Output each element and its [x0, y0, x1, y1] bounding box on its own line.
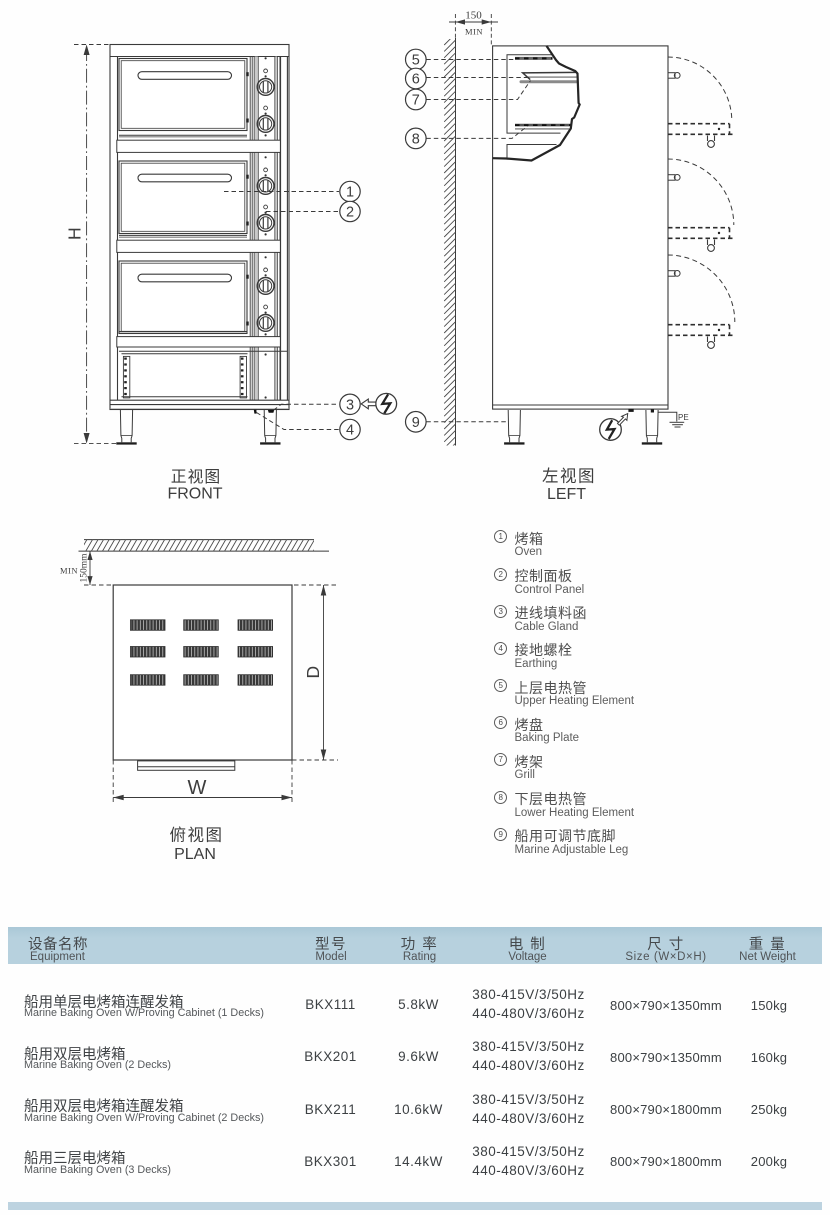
svg-text:LEFT: LEFT [547, 486, 586, 503]
svg-text:4: 4 [346, 423, 354, 439]
svg-text:PE: PE [678, 413, 689, 422]
svg-text:FRONT: FRONT [167, 486, 222, 503]
svg-text:俯视图: 俯视图 [170, 826, 224, 845]
svg-text:150mm: 150mm [80, 553, 90, 583]
svg-text:D: D [303, 666, 323, 679]
svg-text:W: W [188, 777, 207, 799]
svg-text:150: 150 [465, 10, 482, 22]
svg-text:左视图: 左视图 [542, 467, 596, 486]
svg-text:1: 1 [346, 185, 354, 201]
svg-text:8: 8 [412, 131, 420, 147]
svg-text:9: 9 [412, 415, 420, 431]
svg-text:5: 5 [412, 53, 420, 69]
svg-text:正视图: 正视图 [171, 468, 221, 486]
svg-text:2: 2 [346, 205, 354, 221]
svg-text:7: 7 [412, 93, 420, 109]
svg-text:6: 6 [412, 72, 420, 88]
svg-text:PLAN: PLAN [174, 846, 216, 863]
svg-text:3: 3 [346, 397, 354, 413]
svg-text:MIN: MIN [465, 27, 483, 37]
svg-text:H: H [64, 227, 84, 240]
svg-text:MIN: MIN [60, 566, 78, 576]
